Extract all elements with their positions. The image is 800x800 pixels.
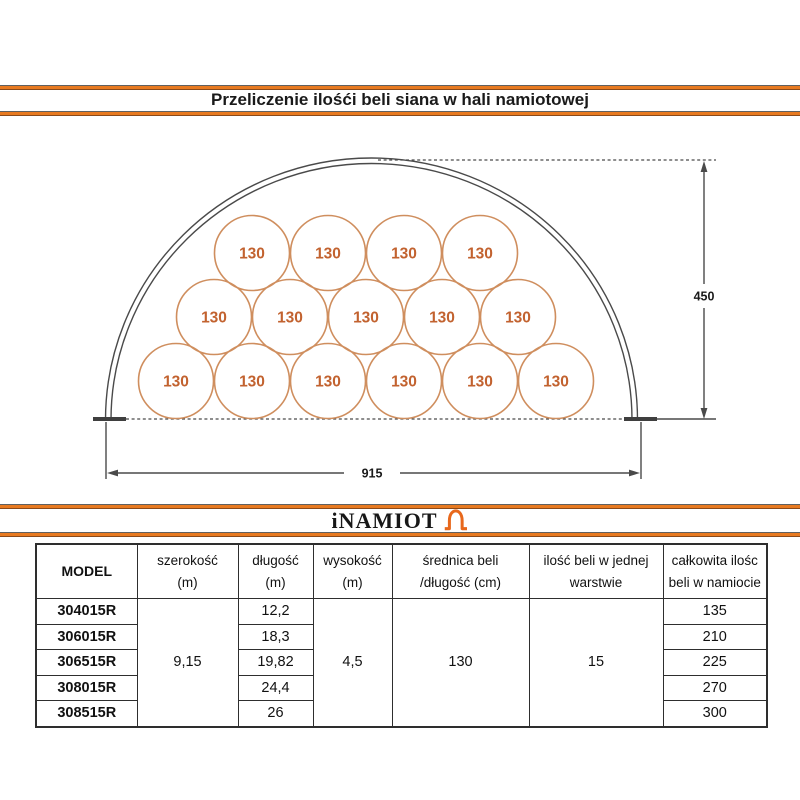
spec-table: MODEL szerokość(m) długość(m) wysokość(m… bbox=[35, 543, 768, 728]
divider-line bbox=[0, 532, 800, 537]
cell-dlugosc: 26 bbox=[238, 701, 313, 727]
height-dimension-label: 450 bbox=[694, 290, 715, 304]
cell-szerokosc: 9,15 bbox=[137, 599, 238, 727]
cell-model: 306515R bbox=[36, 650, 137, 676]
cell-total: 210 bbox=[663, 624, 767, 650]
cell-wysokosc: 4,5 bbox=[313, 599, 392, 727]
cell-total: 225 bbox=[663, 650, 767, 676]
bale-label: 130 bbox=[391, 374, 417, 391]
bale-label: 130 bbox=[505, 310, 531, 327]
bale-label: 130 bbox=[315, 246, 341, 263]
header-dlugosc: długość(m) bbox=[238, 544, 313, 599]
tent-icon bbox=[443, 509, 469, 531]
bale-label: 130 bbox=[201, 310, 227, 327]
foot-right bbox=[624, 417, 657, 421]
bale-label: 130 bbox=[353, 310, 379, 327]
cell-model: 306015R bbox=[36, 624, 137, 650]
height-dim-arrow-up bbox=[701, 161, 708, 172]
header-model: MODEL bbox=[36, 544, 137, 599]
bale-label: 130 bbox=[467, 374, 493, 391]
bale-label: 130 bbox=[239, 374, 265, 391]
spec-sheet-page: 450 915 13013013013013013013013013013013… bbox=[0, 0, 800, 800]
divider-line bbox=[0, 111, 800, 116]
brand-name: iNAMIOT bbox=[332, 509, 438, 532]
cell-model: 308015R bbox=[36, 675, 137, 701]
cell-dlugosc: 19,82 bbox=[238, 650, 313, 676]
width-dim-arrow-right bbox=[629, 470, 640, 477]
cell-total: 135 bbox=[663, 599, 767, 625]
bale-label: 130 bbox=[239, 246, 265, 263]
cell-model: 308515R bbox=[36, 701, 137, 727]
height-dim-arrow-down bbox=[701, 408, 708, 419]
table-header-row: MODEL szerokość(m) długość(m) wysokość(m… bbox=[36, 544, 767, 599]
bale-label: 130 bbox=[429, 310, 455, 327]
bale-label: 130 bbox=[277, 310, 303, 327]
brand-logo: iNAMIOT bbox=[0, 509, 800, 532]
cell-total: 300 bbox=[663, 701, 767, 727]
foot-left bbox=[93, 417, 126, 421]
header-srednica: średnica beli/długość (cm) bbox=[392, 544, 529, 599]
cell-srednica: 130 bbox=[392, 599, 529, 727]
cell-warstwa: 15 bbox=[529, 599, 663, 727]
table-row: 304015R 9,15 12,2 4,5 130 15 135 bbox=[36, 599, 767, 625]
header-warstwa: ilość beli w jednejwarstwie bbox=[529, 544, 663, 599]
width-dimension-label: 915 bbox=[362, 467, 383, 481]
header-szerokosc: szerokość(m) bbox=[137, 544, 238, 599]
bale-stack: 1301301301301301301301301301301301301301… bbox=[139, 216, 594, 419]
header-wysokosc: wysokość(m) bbox=[313, 544, 392, 599]
header-calkowita: całkowita iloścbeli w namiocie bbox=[663, 544, 767, 599]
cell-dlugosc: 18,3 bbox=[238, 624, 313, 650]
bale-label: 130 bbox=[391, 246, 417, 263]
cell-dlugosc: 24,4 bbox=[238, 675, 313, 701]
cell-dlugosc: 12,2 bbox=[238, 599, 313, 625]
bale-label: 130 bbox=[163, 374, 189, 391]
bale-label: 130 bbox=[315, 374, 341, 391]
cell-model: 304015R bbox=[36, 599, 137, 625]
width-dim-arrow-left bbox=[107, 470, 118, 477]
bale-label: 130 bbox=[543, 374, 569, 391]
page-title: Przeliczenie ilośći beli siana w hali na… bbox=[0, 89, 800, 111]
cell-total: 270 bbox=[663, 675, 767, 701]
bale-label: 130 bbox=[467, 246, 493, 263]
